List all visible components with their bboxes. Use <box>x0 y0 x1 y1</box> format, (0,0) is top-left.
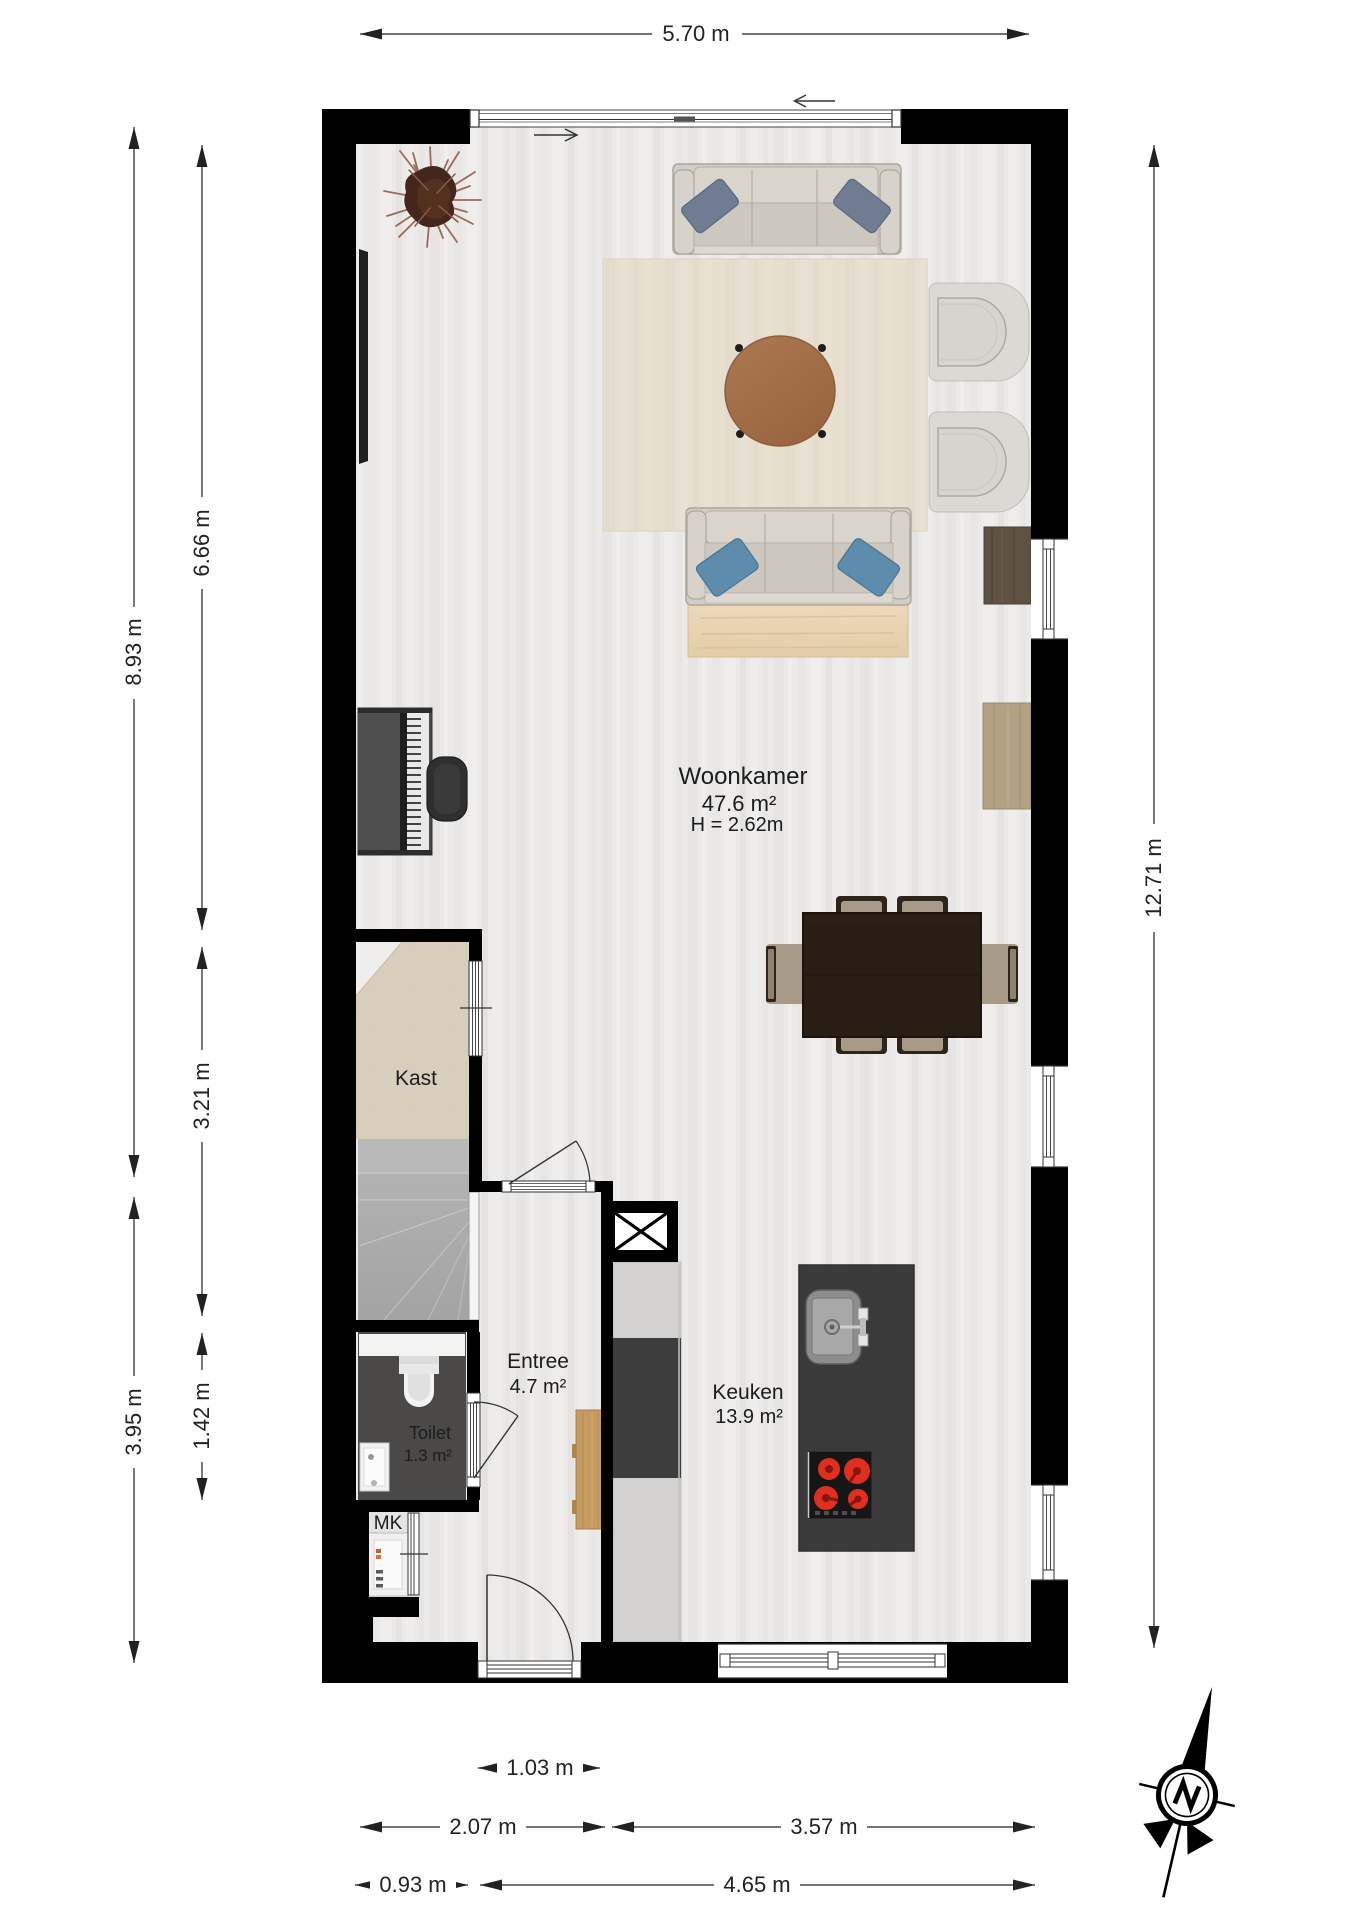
svg-text:Toilet: Toilet <box>409 1423 451 1443</box>
svg-text:6.66 m: 6.66 m <box>189 509 214 576</box>
svg-text:Entree: Entree <box>507 1350 569 1373</box>
svg-text:MK: MK <box>374 1513 403 1534</box>
svg-text:Keuken: Keuken <box>712 1381 783 1404</box>
svg-text:8.93 m: 8.93 m <box>121 618 146 685</box>
svg-text:5.70 m: 5.70 m <box>662 21 729 46</box>
svg-text:H = 2.62m: H = 2.62m <box>691 814 784 836</box>
svg-text:12.71 m: 12.71 m <box>1141 838 1166 918</box>
svg-text:Kast: Kast <box>395 1067 437 1090</box>
svg-text:3.95 m: 3.95 m <box>121 1388 146 1455</box>
svg-text:1.42 m: 1.42 m <box>189 1382 214 1449</box>
svg-text:1.03 m: 1.03 m <box>506 1755 573 1780</box>
svg-text:3.21 m: 3.21 m <box>189 1062 214 1129</box>
svg-text:47.6 m²: 47.6 m² <box>702 791 777 816</box>
svg-text:4.65 m: 4.65 m <box>723 1872 790 1897</box>
svg-text:0.93 m: 0.93 m <box>379 1872 446 1897</box>
svg-text:4.7 m²: 4.7 m² <box>510 1376 567 1398</box>
svg-text:Woonkamer: Woonkamer <box>679 763 808 790</box>
svg-text:2.07 m: 2.07 m <box>449 1814 516 1839</box>
svg-text:13.9 m²: 13.9 m² <box>715 1406 783 1428</box>
svg-text:1.3 m²: 1.3 m² <box>404 1446 453 1465</box>
svg-text:3.57 m: 3.57 m <box>790 1814 857 1839</box>
